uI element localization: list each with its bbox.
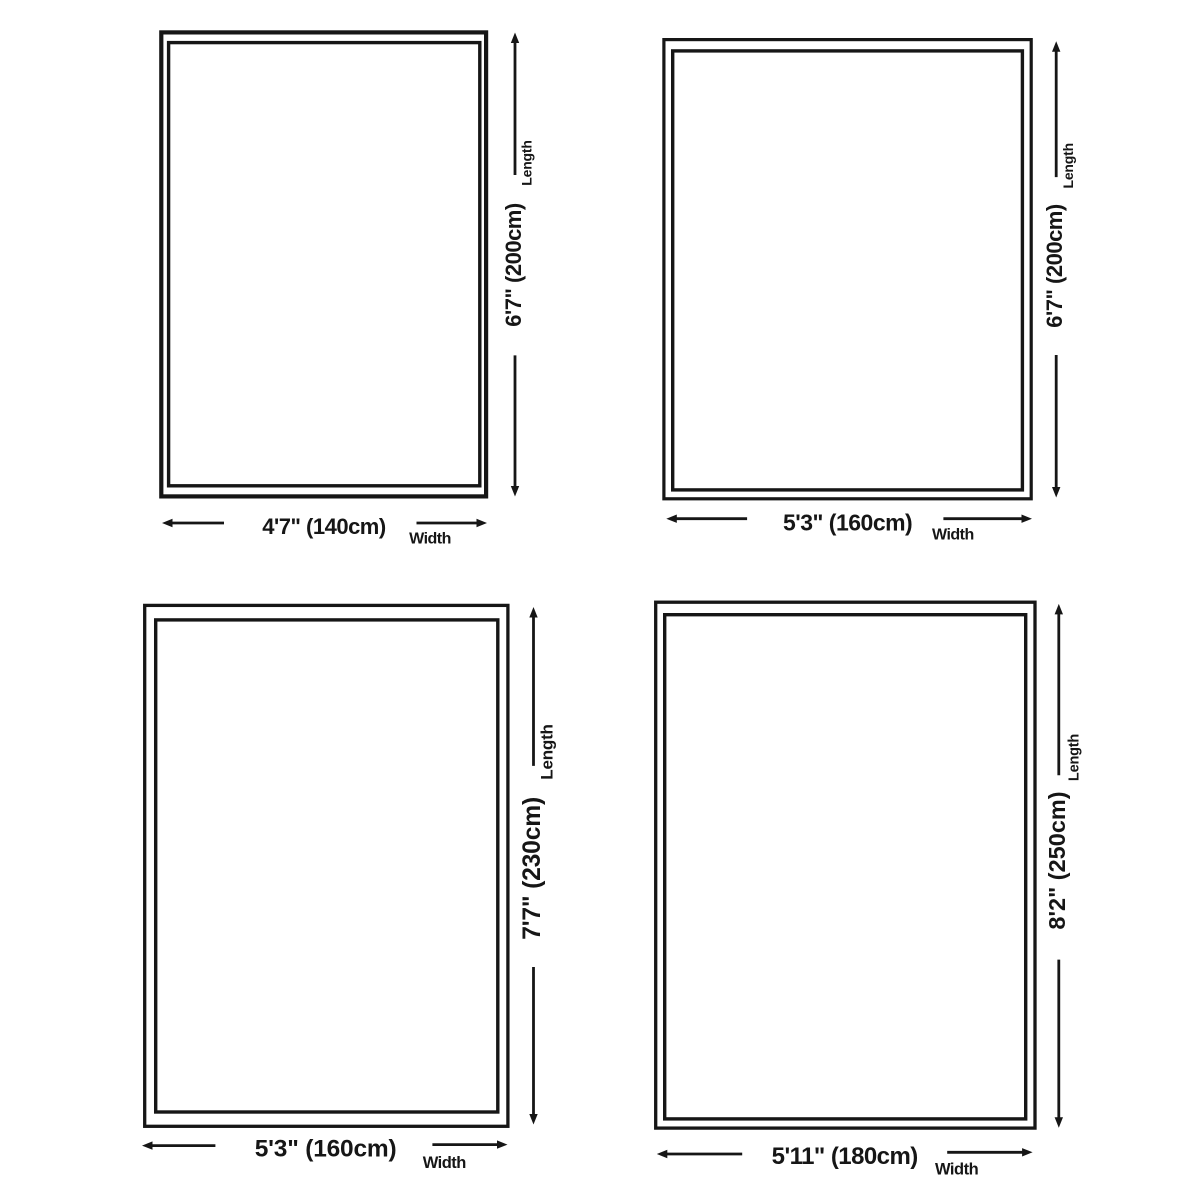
svg-text:8'2" (250cm): 8'2" (250cm) xyxy=(1044,791,1070,929)
svg-text:Length: Length xyxy=(1066,734,1082,781)
svg-text:5'3" (160cm): 5'3" (160cm) xyxy=(255,1136,397,1163)
svg-text:Length: Length xyxy=(1060,143,1076,188)
svg-text:Width: Width xyxy=(423,1154,467,1172)
svg-text:Width: Width xyxy=(935,1161,979,1179)
svg-text:Width: Width xyxy=(932,526,974,543)
svg-text:5'3" (160cm): 5'3" (160cm) xyxy=(783,510,912,536)
svg-text:Width: Width xyxy=(409,530,451,547)
svg-text:5'11" (180cm): 5'11" (180cm) xyxy=(772,1143,918,1170)
svg-text:6'7" (200cm): 6'7" (200cm) xyxy=(501,203,526,327)
svg-text:Length: Length xyxy=(538,724,557,779)
svg-text:4'7" (140cm): 4'7" (140cm) xyxy=(262,514,386,539)
svg-text:6'7" (200cm): 6'7" (200cm) xyxy=(1042,204,1067,328)
svg-text:7'7" (230cm): 7'7" (230cm) xyxy=(519,797,546,940)
svg-text:Length: Length xyxy=(518,140,534,185)
